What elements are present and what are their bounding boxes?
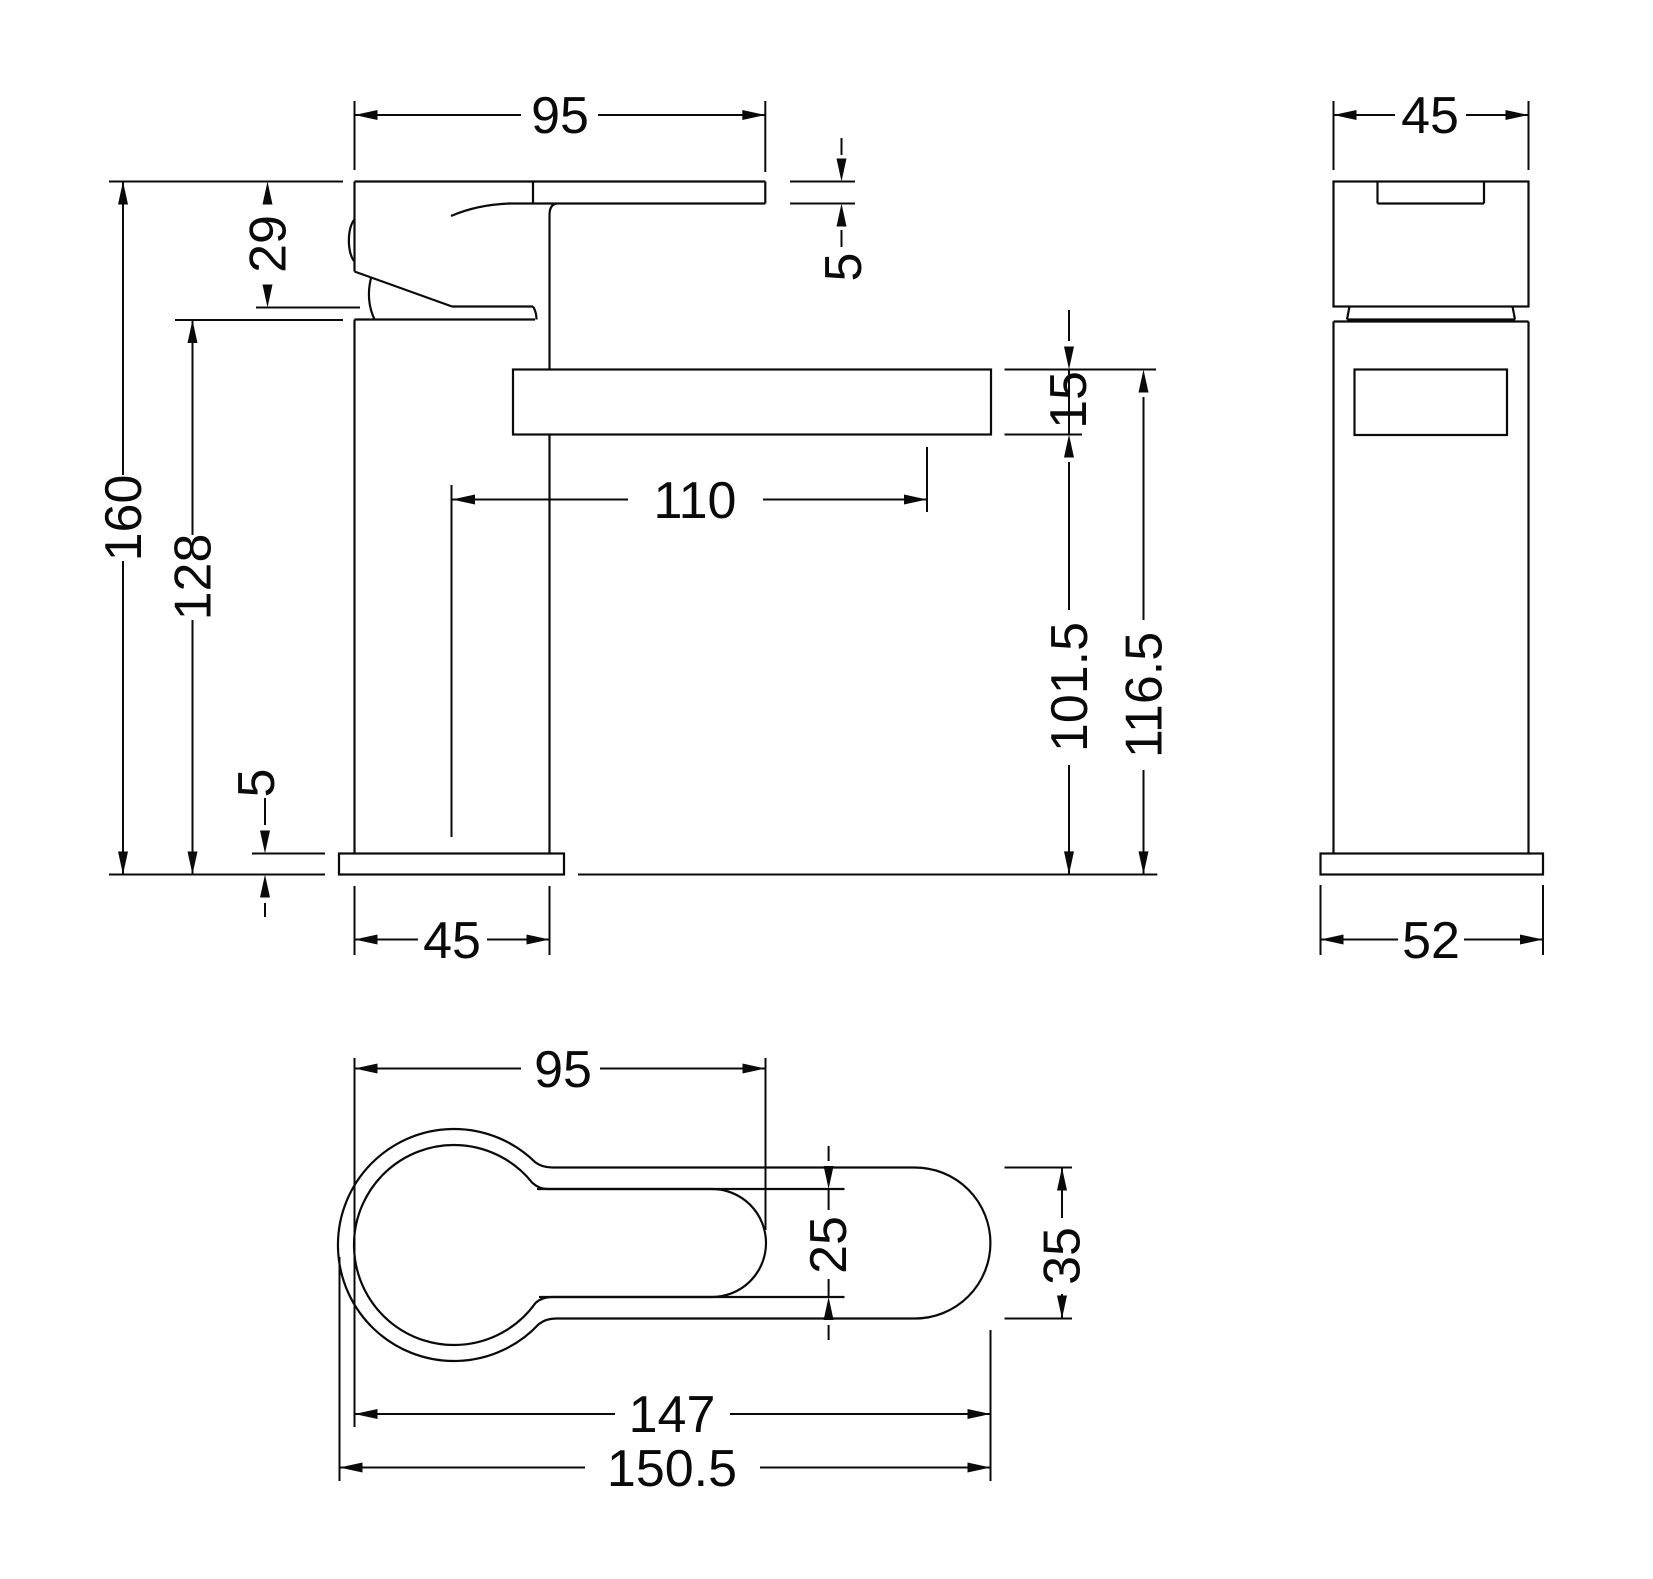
svg-text:147: 147 xyxy=(629,1386,716,1444)
svg-text:52: 52 xyxy=(1402,912,1460,970)
svg-text:45: 45 xyxy=(1401,87,1459,145)
svg-text:5: 5 xyxy=(228,769,286,798)
svg-text:160: 160 xyxy=(95,475,153,562)
svg-text:29: 29 xyxy=(240,215,298,273)
svg-text:95: 95 xyxy=(531,87,589,145)
svg-text:128: 128 xyxy=(165,534,223,621)
svg-text:116.5: 116.5 xyxy=(1116,632,1174,758)
svg-text:15: 15 xyxy=(1040,371,1098,429)
svg-text:150.5: 150.5 xyxy=(607,1440,737,1498)
svg-text:35: 35 xyxy=(1034,1227,1092,1285)
svg-text:25: 25 xyxy=(800,1216,858,1274)
svg-text:5: 5 xyxy=(815,253,873,282)
svg-text:110: 110 xyxy=(654,472,737,530)
svg-text:95: 95 xyxy=(534,1041,592,1099)
svg-text:45: 45 xyxy=(423,912,481,970)
svg-text:101.5: 101.5 xyxy=(1041,622,1099,752)
